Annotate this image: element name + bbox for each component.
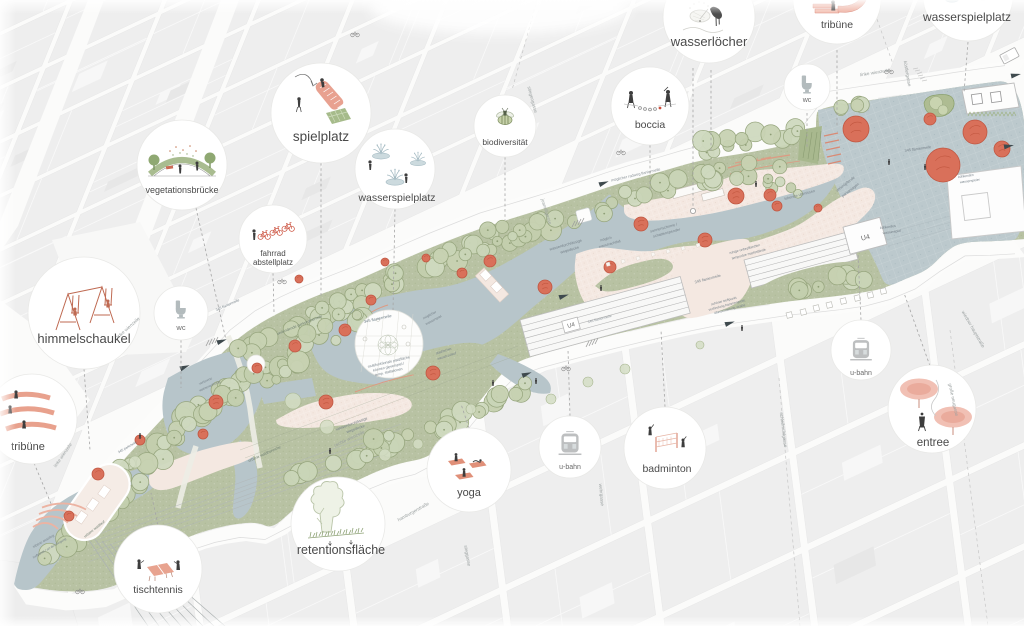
svg-text:spielplatz: spielplatz xyxy=(293,129,350,144)
svg-text:yoga: yoga xyxy=(457,487,482,499)
svg-text:badminton: badminton xyxy=(642,463,691,475)
svg-text:tribüne: tribüne xyxy=(11,441,45,453)
svg-text:wasserlöcher: wasserlöcher xyxy=(670,34,748,49)
svg-text:vegetationsbrücke: vegetationsbrücke xyxy=(145,185,218,195)
svg-text:tribüne: tribüne xyxy=(821,19,853,31)
svg-text:retentionsfläche: retentionsfläche xyxy=(297,543,385,557)
svg-text:entree: entree xyxy=(917,437,950,449)
svg-text:u-bahn: u-bahn xyxy=(559,464,581,471)
svg-text:wc: wc xyxy=(175,323,185,332)
svg-text:wasserspielplatz: wasserspielplatz xyxy=(357,192,435,204)
svg-text:abstellplatz: abstellplatz xyxy=(253,258,293,267)
svg-text:biodiversität: biodiversität xyxy=(482,137,528,147)
svg-text:u-bahn: u-bahn xyxy=(850,370,872,377)
svg-text:wc: wc xyxy=(802,97,812,104)
svg-text:fahrrad: fahrrad xyxy=(260,249,285,258)
svg-text:tischtennis: tischtennis xyxy=(133,584,183,596)
svg-text:boccia: boccia xyxy=(635,119,666,131)
